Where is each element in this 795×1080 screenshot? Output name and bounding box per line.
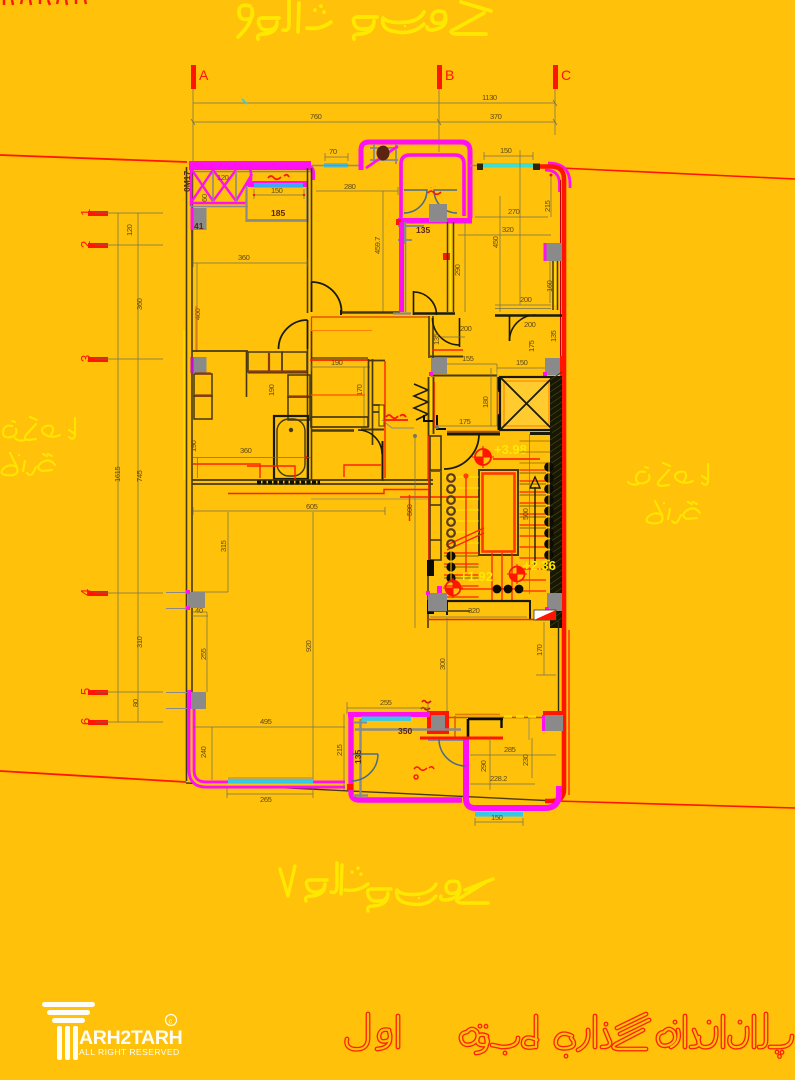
svg-text:+1.92: +1.92 xyxy=(460,569,493,584)
svg-text:5: 5 xyxy=(78,688,93,695)
svg-text:135: 135 xyxy=(432,333,441,345)
svg-text:41: 41 xyxy=(194,221,204,231)
svg-text:215: 215 xyxy=(543,200,552,212)
svg-text:265: 265 xyxy=(260,795,272,804)
svg-text:300: 300 xyxy=(438,658,447,670)
svg-text:6: 6 xyxy=(78,718,93,725)
svg-text:1130: 1130 xyxy=(482,93,497,102)
svg-text:ARH2TARH: ARH2TARH xyxy=(79,1027,182,1049)
svg-text:60: 60 xyxy=(200,194,209,202)
svg-text:350: 350 xyxy=(398,726,412,736)
svg-text:+3.98: +3.98 xyxy=(494,442,527,457)
svg-text:135: 135 xyxy=(549,330,558,342)
svg-text:1615: 1615 xyxy=(113,467,122,482)
svg-text:315: 315 xyxy=(219,540,228,552)
svg-text:1: 1 xyxy=(78,209,93,216)
svg-text:70: 70 xyxy=(329,147,337,156)
svg-text:2: 2 xyxy=(78,241,93,248)
svg-text:120: 120 xyxy=(217,173,229,182)
svg-text:C: C xyxy=(561,67,571,83)
svg-text:310: 310 xyxy=(135,636,144,648)
svg-text:320: 320 xyxy=(468,606,480,615)
svg-text:190: 190 xyxy=(267,384,276,396)
svg-text:135: 135 xyxy=(416,225,430,235)
svg-text:500: 500 xyxy=(405,504,414,516)
svg-text:135: 135 xyxy=(353,750,363,764)
svg-text:459.7: 459.7 xyxy=(373,237,382,254)
svg-text:400: 400 xyxy=(193,308,202,320)
svg-text:150: 150 xyxy=(516,358,528,367)
svg-text:4: 4 xyxy=(78,589,93,596)
svg-text:370: 370 xyxy=(490,112,502,121)
svg-text:285: 285 xyxy=(504,745,516,754)
svg-text:150: 150 xyxy=(491,813,503,822)
svg-text:200: 200 xyxy=(520,295,532,304)
svg-text:228.2: 228.2 xyxy=(490,774,507,783)
svg-text:255: 255 xyxy=(380,698,392,707)
svg-text:190: 190 xyxy=(331,358,343,367)
svg-text:190: 190 xyxy=(189,440,198,452)
svg-text:200: 200 xyxy=(460,324,472,333)
svg-text:ALL RIGHT RESERVED: ALL RIGHT RESERVED xyxy=(79,1047,180,1057)
svg-text:200: 200 xyxy=(524,320,536,329)
svg-text:180: 180 xyxy=(481,396,490,408)
svg-text:360: 360 xyxy=(238,253,250,262)
svg-text:170: 170 xyxy=(355,384,364,396)
svg-text:255: 255 xyxy=(199,648,208,660)
svg-text:150: 150 xyxy=(271,186,283,195)
svg-text:320: 320 xyxy=(502,225,514,234)
svg-text:360: 360 xyxy=(135,298,144,310)
svg-text:3: 3 xyxy=(78,355,93,362)
svg-text:155: 155 xyxy=(462,354,474,363)
svg-text:c: c xyxy=(169,1017,173,1026)
svg-text:500: 500 xyxy=(521,508,530,520)
svg-text:215: 215 xyxy=(335,744,344,756)
svg-text:+2.36: +2.36 xyxy=(523,558,556,573)
svg-text:40: 40 xyxy=(195,606,203,615)
svg-text:185: 185 xyxy=(271,208,285,218)
svg-text:760: 760 xyxy=(310,112,322,121)
svg-text:240: 240 xyxy=(199,746,208,758)
svg-text:605: 605 xyxy=(306,502,318,511)
svg-text:230: 230 xyxy=(521,754,530,766)
svg-text:450: 450 xyxy=(491,236,500,248)
svg-text:270: 270 xyxy=(508,207,520,216)
svg-text:745: 745 xyxy=(135,470,144,482)
svg-text:280: 280 xyxy=(344,182,356,191)
svg-text:360: 360 xyxy=(240,446,252,455)
svg-text:495: 495 xyxy=(260,717,272,726)
svg-text:290: 290 xyxy=(479,760,488,772)
svg-text:A: A xyxy=(199,67,209,83)
svg-text:B: B xyxy=(445,67,454,83)
svg-text:80: 80 xyxy=(131,699,140,707)
svg-text:920: 920 xyxy=(304,640,313,652)
svg-text:120: 120 xyxy=(125,224,134,236)
svg-text:175: 175 xyxy=(459,417,471,426)
svg-text:150: 150 xyxy=(500,146,512,155)
svg-text:290: 290 xyxy=(453,264,462,276)
svg-text:170: 170 xyxy=(535,644,544,656)
svg-text:175: 175 xyxy=(527,340,536,352)
svg-text:160: 160 xyxy=(545,280,554,292)
